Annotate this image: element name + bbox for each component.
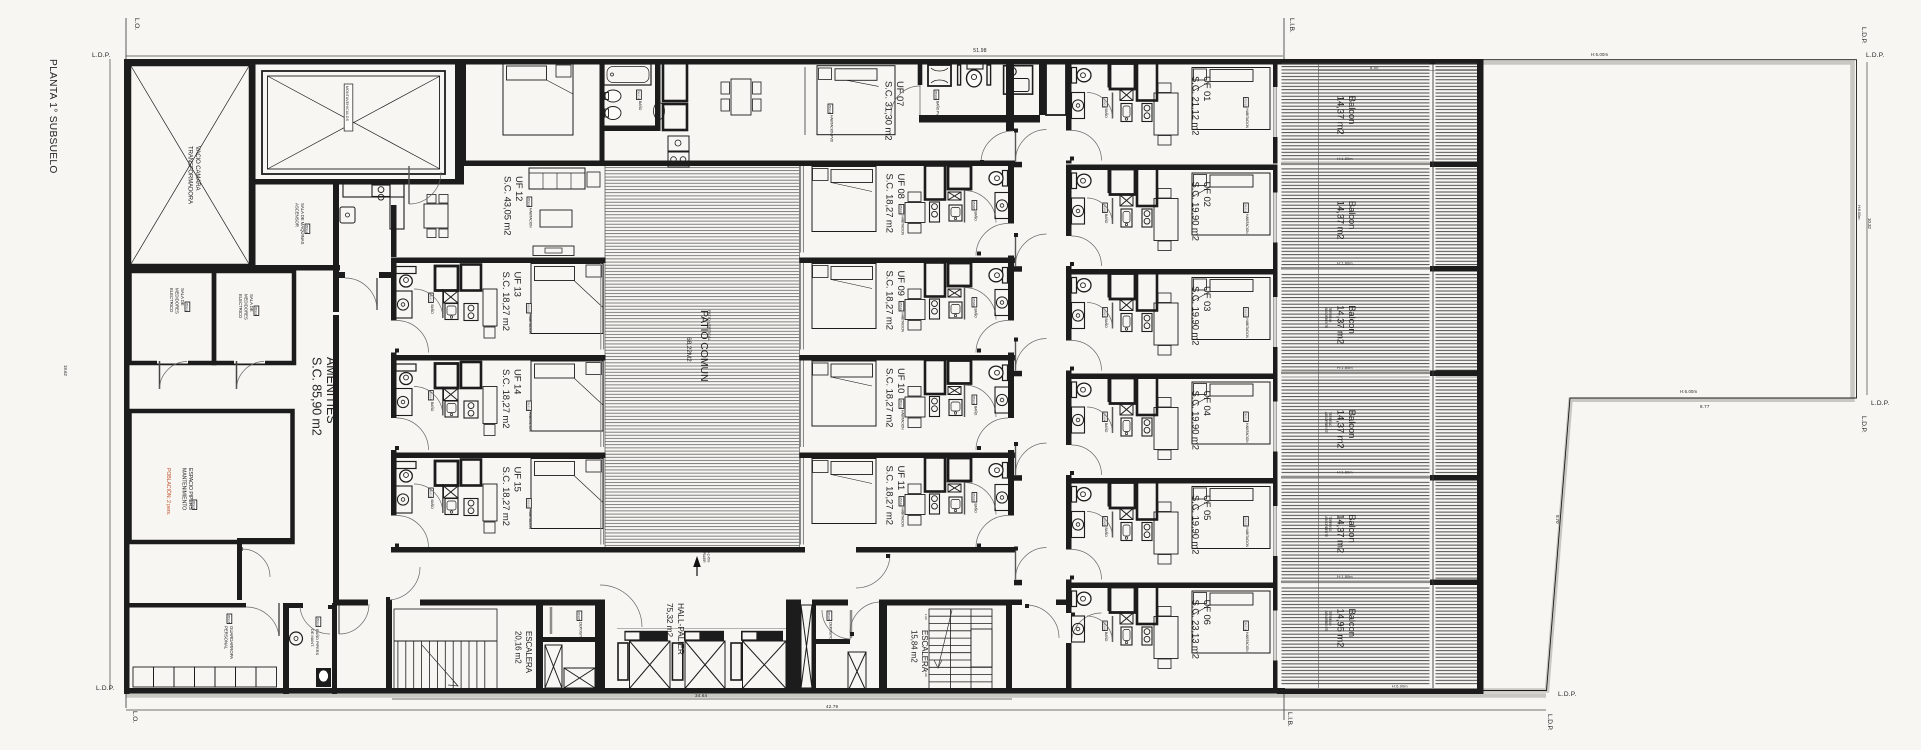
svg-text:05S09: 05S09	[972, 298, 976, 307]
svg-text:05S08: 05S08	[972, 201, 976, 210]
svg-text:HABITACION: HABITACION	[901, 313, 905, 333]
svg-text:BAÑO: BAÑO	[974, 212, 979, 222]
svg-text:05S19: 05S19	[527, 304, 531, 313]
svg-text:L.D.P.: L.D.P.	[1860, 27, 1867, 44]
svg-text:05S17: 05S17	[316, 618, 320, 627]
svg-text:05S19: 05S19	[899, 302, 903, 311]
svg-text:05S19: 05S19	[828, 105, 832, 114]
svg-text:10.32: 10.32	[1867, 218, 1872, 229]
svg-text:8.00: 8.00	[1370, 65, 1379, 70]
svg-text:05S15: 05S15	[227, 615, 231, 624]
svg-text:HABITACION: HABITACION	[1245, 632, 1249, 652]
svg-text:H:1.80m: H:1.80m	[1337, 366, 1353, 370]
svg-text:ESPACIO PIPERSMANTENIMIENTO: ESPACIO PIPERSMANTENIMIENTO	[181, 468, 193, 510]
svg-text:HABITACION: HABITACION	[901, 508, 905, 528]
svg-text:BAÑO: BAÑO	[1104, 632, 1109, 642]
svg-text:HABITACION: HABITACION	[1245, 423, 1249, 443]
svg-text:05S19: 05S19	[1244, 308, 1248, 317]
svg-text:PALIER: PALIER	[702, 552, 706, 563]
svg-text:BAÑO: BAÑO	[974, 406, 979, 416]
svg-text:8.70: 8.70	[1555, 515, 1560, 524]
svg-text:L.O.: L.O.	[133, 18, 140, 30]
svg-text:1.20: 1.20	[924, 614, 928, 620]
svg-text:H:6.00m: H:6.00m	[1857, 205, 1862, 220]
svg-text:L.O.: L.O.	[131, 711, 138, 723]
svg-text:05S06: 05S06	[934, 91, 938, 100]
svg-text:05S19: 05S19	[527, 198, 531, 207]
svg-text:L.D.P.: L.D.P.	[96, 685, 114, 692]
svg-text:HABITACION: HABITACION	[528, 315, 532, 335]
svg-text:BAÑO: BAÑO	[974, 504, 979, 514]
svg-text:L.I.B.: L.I.B.	[1288, 18, 1295, 33]
svg-text:H:1.80m: H:1.80m	[1337, 575, 1353, 579]
svg-text:05S16: 05S16	[192, 501, 196, 510]
svg-text:05S19: 05S19	[899, 205, 903, 214]
svg-text:H:6.00m: H:6.00m	[1680, 389, 1698, 394]
svg-text:L.D.P.: L.D.P.	[1866, 52, 1884, 59]
svg-text:05S19: 05S19	[1244, 204, 1248, 213]
svg-text:HABITACION: HABITACION	[528, 510, 532, 530]
svg-text:05S10: 05S10	[972, 396, 976, 405]
svg-text:BAÑO: BAÑO	[1104, 528, 1109, 538]
svg-text:L.D.P.: L.D.P.	[1558, 691, 1576, 698]
svg-text:BAÑO: BAÑO	[1104, 109, 1109, 119]
svg-text:BAÑO: BAÑO	[1104, 423, 1109, 433]
svg-text:MONTAVEHICULOS: MONTAVEHICULOS	[345, 86, 349, 122]
svg-text:BAÑO: BAÑO	[430, 305, 435, 315]
svg-text:BAÑO: BAÑO	[1104, 214, 1109, 224]
svg-text:BAÑO PVD: BAÑO PVD	[936, 101, 941, 118]
svg-text:34.64: 34.64	[695, 693, 708, 698]
svg-text:HABITACION PVD: HABITACION PVD	[830, 115, 834, 143]
svg-text:H:1.80m: H:1.80m	[1337, 262, 1353, 266]
svg-text:HABITACION: HABITACION	[1245, 528, 1249, 548]
svg-text:HABITACION: HABITACION	[1245, 109, 1249, 129]
svg-text:L.D.P.: L.D.P.	[92, 52, 110, 59]
svg-text:H:6.00m: H:6.00m	[1392, 685, 1408, 689]
svg-text:L.D.P.: L.D.P.	[1546, 714, 1553, 731]
svg-text:05S06: 05S06	[827, 612, 831, 621]
svg-text:BAÑO: BAÑO	[1104, 319, 1109, 329]
svg-text:19.62: 19.62	[63, 365, 68, 376]
svg-text:BAÑO: BAÑO	[974, 309, 979, 319]
svg-text:L.I.B.: L.I.B.	[1286, 712, 1293, 727]
svg-text:BAÑO: BAÑO	[430, 402, 435, 412]
svg-text:05S19: 05S19	[527, 499, 531, 508]
svg-text:DEPOSITO: DEPOSITO	[579, 622, 583, 640]
svg-text:68,22M2: 68,22M2	[685, 337, 692, 362]
svg-text:HABITACION: HABITACION	[1245, 214, 1249, 234]
svg-text:05S19: 05S19	[1244, 413, 1248, 422]
svg-text:05S19: 05S19	[899, 400, 903, 409]
svg-text:POBLACIÓN: 2 pers.: POBLACIÓN: 2 pers.	[165, 468, 172, 515]
svg-text:05S11: 05S11	[972, 493, 976, 502]
svg-text:05S13: 05S13	[185, 303, 189, 312]
svg-text:DEPOSITO: DEPOSITO	[829, 622, 833, 640]
svg-text:51.98: 51.98	[973, 48, 987, 54]
svg-text:8.77: 8.77	[1700, 404, 1710, 409]
svg-text:L.D.P.: L.D.P.	[1860, 416, 1867, 433]
svg-text:HABITACION: HABITACION	[1245, 319, 1249, 339]
svg-text:H:1.80m: H:1.80m	[1337, 471, 1353, 475]
svg-text:HABITACION: HABITACION	[901, 216, 905, 236]
svg-text:05S18: 05S18	[637, 91, 641, 100]
svg-text:H:1.80m: H:1.80m	[1337, 157, 1353, 161]
svg-text:05S12: 05S12	[305, 225, 309, 234]
svg-text:05S19: 05S19	[1244, 622, 1248, 631]
svg-text:05S05: 05S05	[577, 612, 581, 621]
svg-text:PLANTA 1° SUBSUELO: PLANTA 1° SUBSUELO	[47, 59, 58, 174]
svg-text:05S19: 05S19	[1244, 517, 1248, 526]
svg-text:+2.45m: +2.45m	[707, 552, 711, 563]
svg-text:05S14: 05S14	[254, 307, 258, 316]
svg-text:05S19: 05S19	[527, 402, 531, 411]
svg-text:HABITACION: HABITACION	[528, 412, 532, 432]
svg-text:BAÑO: BAÑO	[430, 500, 435, 510]
svg-text:PATIO COMUN: PATIO COMUN	[698, 310, 710, 381]
svg-text:42.79: 42.79	[826, 704, 839, 709]
svg-text:L.D.P.: L.D.P.	[1871, 400, 1889, 407]
svg-text:BAÑO: BAÑO	[638, 101, 643, 111]
svg-text:HABITACION: HABITACION	[901, 410, 905, 430]
svg-text:HABITACION: HABITACION	[529, 208, 533, 228]
svg-text:1.20: 1.20	[924, 671, 928, 677]
svg-text:H:6.00m: H:6.00m	[1591, 52, 1609, 57]
svg-text:05S19: 05S19	[1244, 98, 1248, 107]
svg-text:05S19: 05S19	[899, 497, 903, 506]
